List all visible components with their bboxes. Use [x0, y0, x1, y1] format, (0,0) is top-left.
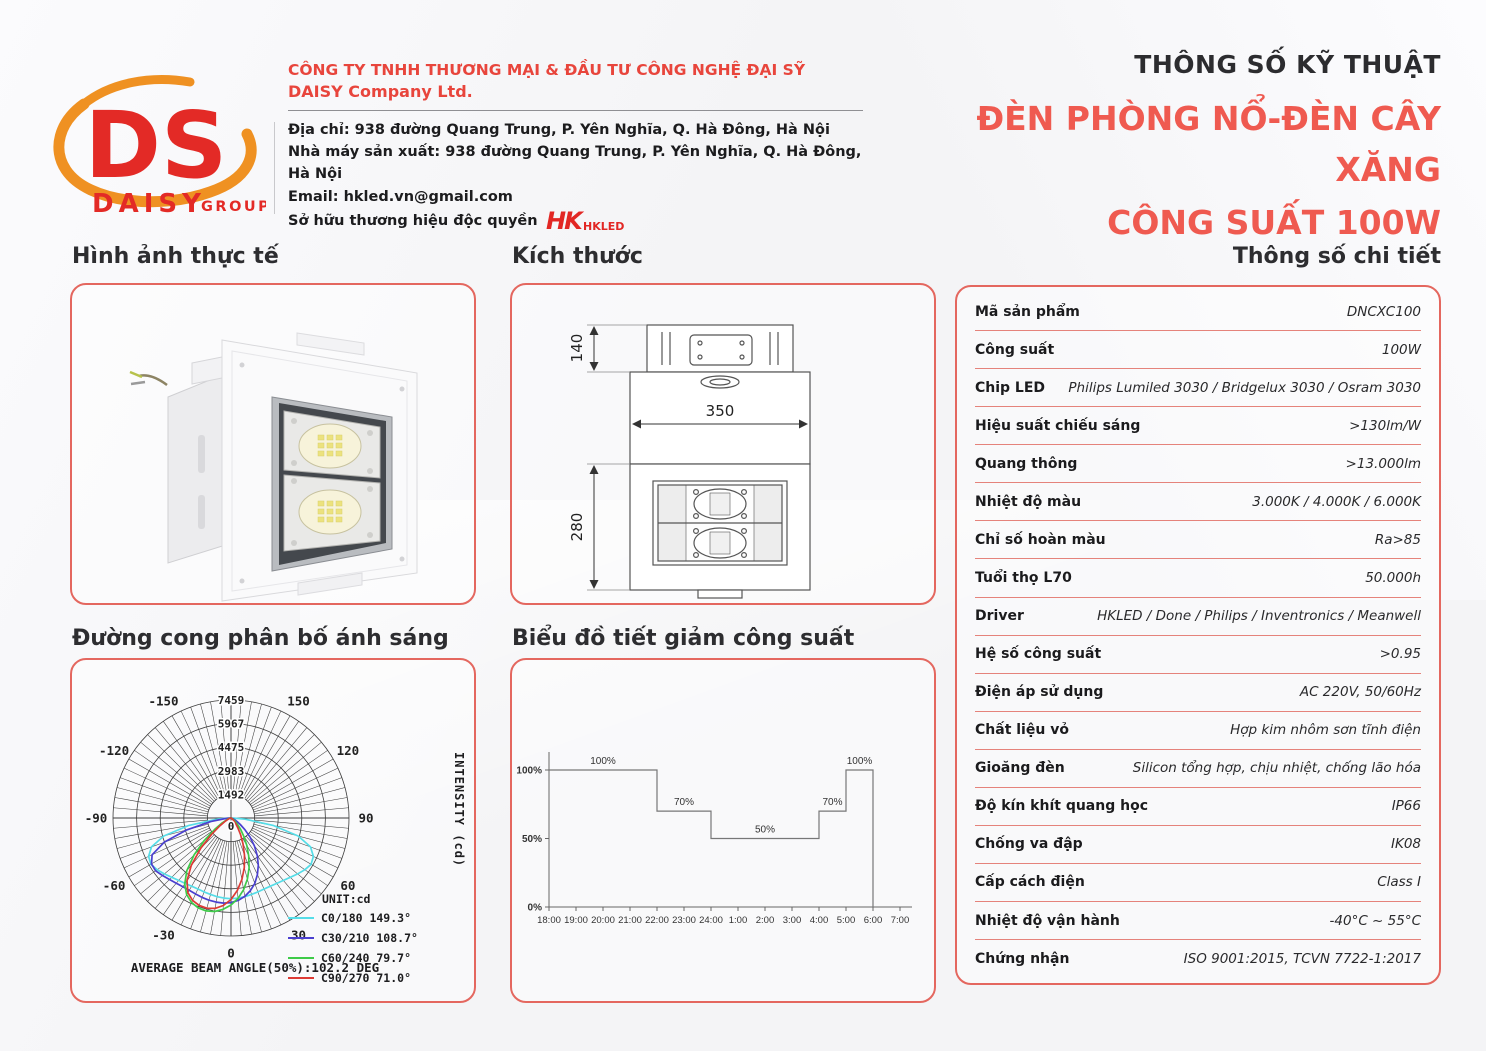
spec-label: Nhiệt độ vận hành [975, 913, 1120, 929]
spec-label: Điện áp sử dụng [975, 684, 1103, 700]
spec-row: Chống va đậpIK08 [975, 826, 1421, 864]
section-title-dimensions: Kích thước [512, 244, 643, 269]
spec-value: AC 220V, 50/60Hz [1300, 684, 1421, 700]
logo-monogram: DS [85, 92, 228, 199]
product-photo-panel [70, 283, 476, 605]
spec-value: IK08 [1391, 836, 1421, 852]
spec-label: Hiệu suất chiếu sáng [975, 418, 1140, 434]
legend-label: C30/210 108.7° [321, 931, 418, 945]
company-name-vi: CÔNG TY TNHH THƯƠNG MẠI & ĐẦU TƯ CÔNG NG… [288, 60, 863, 81]
spec-value: Philips Lumiled 3030 / Bridgelux 3030 / … [1068, 380, 1421, 396]
dimension-drawing: 140 350 280 [512, 285, 934, 603]
svg-text:2983: 2983 [218, 765, 245, 778]
logo-brand: DAISY [92, 189, 206, 219]
spec-label: Tuổi thọ L70 [975, 570, 1072, 586]
doc-title: THÔNG SỐ KỸ THUẬT [880, 50, 1441, 79]
company-email: Email: hkled.vn@gmail.com [288, 186, 863, 208]
spec-label: Chất liệu vỏ [975, 722, 1069, 738]
legend-unit-label: UNIT:cd [322, 892, 464, 906]
section-title-dimming: Biểu đồ tiết giảm công suất [512, 626, 854, 651]
dim-140-label: 140 [568, 334, 586, 363]
svg-text:24:00: 24:00 [699, 915, 723, 926]
spec-label: Gioăng đèn [975, 760, 1065, 776]
legend-item: C0/180 149.3° [288, 908, 464, 928]
spec-sheet-page: DS DAISY GROUP CÔNG TY TNHH THƯƠNG MẠI &… [0, 0, 1486, 1051]
product-title-line2: CÔNG SUẤT 100W [880, 197, 1441, 248]
spec-row: Mã sản phẩmDNCXC100 [975, 293, 1421, 331]
beam-angle-annotation: AVERAGE BEAM ANGLE(50%):102.2 DEG [100, 960, 410, 975]
spec-label: Chống va đập [975, 836, 1083, 852]
light-distribution-panel: 014922983447559677459-150-120-90-60-3003… [70, 658, 476, 1003]
spec-value: -40°C ~ 55°C [1330, 913, 1421, 929]
svg-text:-150: -150 [148, 694, 178, 709]
svg-text:0: 0 [227, 946, 235, 961]
spec-label: Hệ số công suất [975, 646, 1101, 662]
spec-value: DNCXC100 [1347, 304, 1421, 320]
polar-y-axis-label: INTENSITY (cd) [452, 752, 466, 867]
spec-value: >0.95 [1380, 646, 1421, 662]
spec-row: Nhiệt độ vận hành-40°C ~ 55°C [975, 902, 1421, 940]
spec-label: Công suất [975, 342, 1054, 358]
company-name-en: DAISY Company Ltd. [288, 81, 863, 103]
header-divider [274, 122, 275, 214]
spec-value: ISO 9001:2015, TCVN 7722-1:2017 [1184, 951, 1421, 967]
spec-value: >13.000lm [1346, 456, 1421, 472]
svg-text:70%: 70% [822, 797, 842, 808]
spec-value: 100W [1382, 342, 1421, 358]
spec-value: Silicon tổng hợp, chịu nhiệt, chống lão … [1133, 760, 1421, 776]
dim-350-label: 350 [706, 402, 735, 420]
svg-text:22:00: 22:00 [645, 915, 669, 926]
spec-label: Cấp cách điện [975, 874, 1085, 890]
spec-value: 3.000K / 4.000K / 6.000K [1252, 494, 1421, 510]
svg-text:18:00: 18:00 [537, 915, 561, 926]
spec-row: Độ kín khít quang họcIP66 [975, 788, 1421, 826]
logo-brand-suffix: GROUP [201, 199, 266, 215]
company-divider [288, 110, 863, 111]
legend-line-icon [288, 917, 314, 919]
hkled-logo: HK HKLED [546, 208, 642, 234]
spec-row: DriverHKLED / Done / Philips / Inventron… [975, 598, 1421, 636]
trademark-text: Sở hữu thương hiệu độc quyền [288, 210, 538, 232]
svg-text:120: 120 [337, 743, 360, 758]
spec-row: Điện áp sử dụngAC 220V, 50/60Hz [975, 674, 1421, 712]
dimensions-panel: 140 350 280 [510, 283, 936, 605]
spec-value: IP66 [1392, 798, 1421, 814]
spec-value: Class I [1377, 874, 1421, 890]
svg-text:150: 150 [287, 694, 310, 709]
spec-value: Hợp kim nhôm sơn tĩnh điện [1230, 722, 1421, 738]
svg-text:2:00: 2:00 [756, 915, 775, 926]
svg-text:70%: 70% [674, 797, 694, 808]
company-info: CÔNG TY TNHH THƯƠNG MẠI & ĐẦU TƯ CÔNG NG… [288, 60, 863, 234]
legend-item: C30/210 108.7° [288, 928, 464, 948]
spec-value: >130lm/W [1349, 418, 1421, 434]
title-block: THÔNG SỐ KỸ THUẬT ĐÈN PHÒNG NỔ-ĐÈN CÂY X… [880, 50, 1441, 248]
svg-text:7:00: 7:00 [891, 915, 910, 926]
svg-text:7459: 7459 [218, 694, 245, 707]
spec-table: Mã sản phẩmDNCXC100Công suất100WChip LED… [955, 285, 1441, 985]
svg-text:-60: -60 [103, 878, 126, 893]
svg-text:100%: 100% [847, 756, 873, 767]
section-title-distribution: Đường cong phân bố ánh sáng [72, 626, 449, 651]
svg-text:19:00: 19:00 [564, 915, 588, 926]
spec-label: Chip LED [975, 380, 1045, 396]
company-address: Địa chỉ: 938 đường Quang Trung, P. Yên N… [288, 119, 863, 141]
svg-text:5:00: 5:00 [837, 915, 856, 926]
svg-text:0%: 0% [528, 903, 543, 914]
section-title-photo: Hình ảnh thực tế [72, 244, 279, 269]
spec-row: Chỉ số hoàn màuRa>85 [975, 521, 1421, 559]
spec-value: Ra>85 [1375, 532, 1421, 548]
company-trademark-line: Sở hữu thương hiệu độc quyền HK HKLED [288, 208, 863, 234]
spec-label: Nhiệt độ màu [975, 494, 1081, 510]
product-photo [72, 285, 474, 603]
svg-text:21:00: 21:00 [618, 915, 642, 926]
spec-row: Chip LEDPhilips Lumiled 3030 / Bridgelux… [975, 369, 1421, 407]
svg-text:-30: -30 [152, 927, 175, 942]
company-factory: Nhà máy sản xuất: 938 đường Quang Trung,… [288, 141, 863, 186]
svg-text:23:00: 23:00 [672, 915, 696, 926]
svg-text:50%: 50% [522, 834, 542, 845]
spec-row: Chứng nhậnISO 9001:2015, TCVN 7722-1:201… [975, 940, 1421, 977]
svg-text:-90: -90 [85, 811, 108, 826]
spec-row: Hệ số công suất>0.95 [975, 636, 1421, 674]
svg-text:6:00: 6:00 [864, 915, 883, 926]
product-title-line1: ĐÈN PHÒNG NỔ-ĐÈN CÂY XĂNG [880, 93, 1441, 195]
spec-label: Quang thông [975, 456, 1077, 472]
spec-value: HKLED / Done / Philips / Inventronics / … [1097, 608, 1421, 624]
dimming-chart-panel: 18:0019:0020:0021:0022:0023:0024:001:002… [510, 658, 936, 1003]
spec-row: Chất liệu vỏHợp kim nhôm sơn tĩnh điện [975, 712, 1421, 750]
spec-row: Hiệu suất chiếu sáng>130lm/W [975, 407, 1421, 445]
svg-text:50%: 50% [755, 825, 775, 836]
svg-text:4:00: 4:00 [810, 915, 829, 926]
step-chart: 18:0019:0020:0021:0022:0023:0024:001:002… [512, 660, 934, 1001]
svg-text:4475: 4475 [218, 741, 245, 754]
svg-text:1492: 1492 [218, 788, 245, 801]
hkled-word: HKLED [583, 220, 624, 233]
legend-line-icon [288, 977, 314, 979]
legend-line-icon [288, 957, 314, 959]
svg-text:5967: 5967 [218, 718, 245, 731]
svg-text:60: 60 [340, 878, 355, 893]
spec-row: Gioăng đènSilicon tổng hợp, chịu nhiệt, … [975, 750, 1421, 788]
svg-text:3:00: 3:00 [783, 915, 802, 926]
svg-text:100%: 100% [516, 766, 542, 777]
section-title-specs: Thông số chi tiết [955, 244, 1441, 269]
dim-280-label: 280 [568, 513, 586, 542]
svg-text:100%: 100% [590, 756, 616, 767]
svg-text:0: 0 [228, 820, 235, 833]
spec-label: Độ kín khít quang học [975, 798, 1148, 814]
spec-row: Tuổi thọ L7050.000h [975, 559, 1421, 597]
spec-value: 50.000h [1365, 570, 1421, 586]
spec-row: Nhiệt độ màu3.000K / 4.000K / 6.000K [975, 483, 1421, 521]
spec-label: Driver [975, 608, 1024, 624]
spec-label: Mã sản phẩm [975, 304, 1080, 320]
svg-text:-120: -120 [99, 743, 129, 758]
legend-line-icon [288, 937, 314, 939]
spec-row: Quang thông>13.000lm [975, 445, 1421, 483]
daisy-group-logo: DS DAISY GROUP [48, 58, 266, 220]
svg-text:90: 90 [358, 811, 373, 826]
hkled-mark: HK [546, 208, 585, 234]
spec-label: Chỉ số hoàn màu [975, 532, 1106, 548]
spec-label: Chứng nhận [975, 951, 1069, 967]
legend-label: C0/180 149.3° [321, 911, 411, 925]
spec-row: Công suất100W [975, 331, 1421, 369]
svg-text:1:00: 1:00 [729, 915, 748, 926]
svg-text:20:00: 20:00 [591, 915, 615, 926]
spec-row: Cấp cách điệnClass I [975, 864, 1421, 902]
